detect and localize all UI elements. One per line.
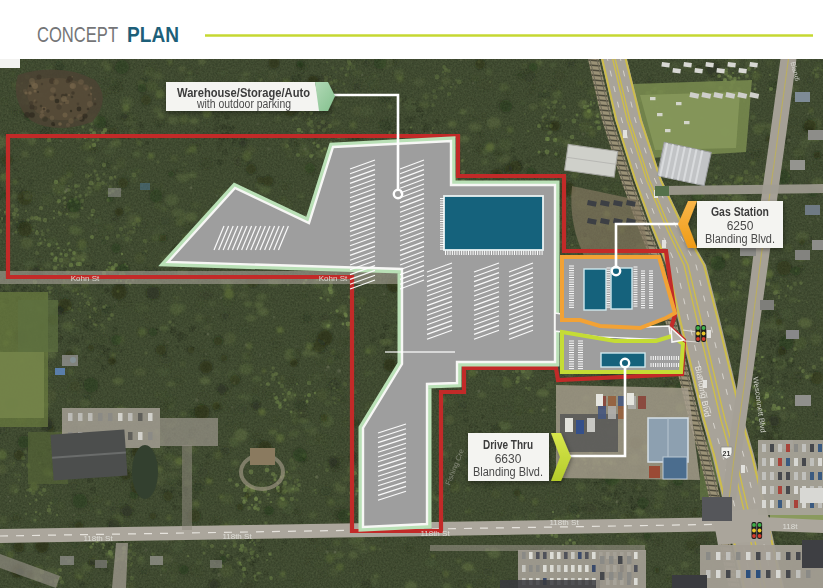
svg-text:CONCEPT: CONCEPT [37,22,118,47]
svg-text:Blanding Blvd.: Blanding Blvd. [473,465,543,479]
svg-text:Kohn St: Kohn St [71,274,100,283]
svg-text:6630: 6630 [495,452,522,466]
svg-text:Kohn St: Kohn St [319,274,348,283]
svg-text:118th St: 118th St [222,532,252,541]
svg-text:with outdoor parking: with outdoor parking [196,97,291,111]
svg-text:PLAN: PLAN [127,22,179,47]
svg-text:6250: 6250 [727,219,754,233]
svg-text:118t: 118t [783,522,799,531]
svg-text:118th St: 118th St [420,529,450,538]
svg-text:118th St: 118th St [549,518,579,527]
svg-text:Drive Thru: Drive Thru [483,438,533,452]
svg-text:21: 21 [723,450,731,457]
svg-text:Blanding Blvd.: Blanding Blvd. [705,232,775,246]
svg-text:Gas Station: Gas Station [711,205,769,219]
svg-text:118th St: 118th St [83,534,113,543]
